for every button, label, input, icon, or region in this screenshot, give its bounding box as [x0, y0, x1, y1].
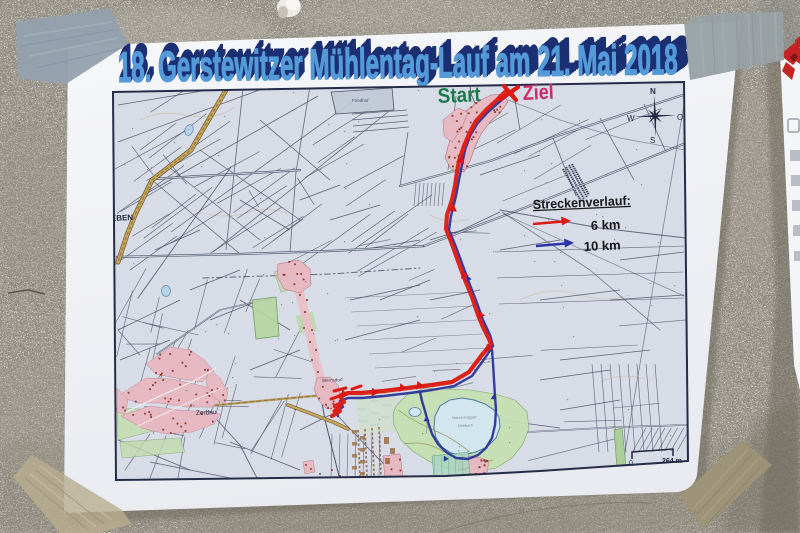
svg-text:Ziel: Ziel	[522, 81, 554, 105]
svg-text:Mühlteich: Mühlteich	[458, 423, 473, 428]
svg-text:0: 0	[629, 460, 633, 467]
svg-text:Zerbau: Zerbau	[196, 409, 217, 417]
svg-text:6 km: 6 km	[590, 217, 620, 233]
svg-text:Start: Start	[437, 83, 481, 108]
svg-text:W: W	[627, 114, 635, 123]
svg-text:264 m: 264 m	[662, 458, 682, 465]
svg-text:Wernsdorf: Wernsdorf	[322, 377, 344, 383]
svg-text:Friedhof: Friedhof	[352, 98, 369, 103]
svg-text:O: O	[677, 113, 683, 122]
svg-text:S: S	[650, 136, 655, 145]
svg-text:N: N	[650, 87, 656, 96]
svg-text:10 km: 10 km	[583, 237, 620, 254]
